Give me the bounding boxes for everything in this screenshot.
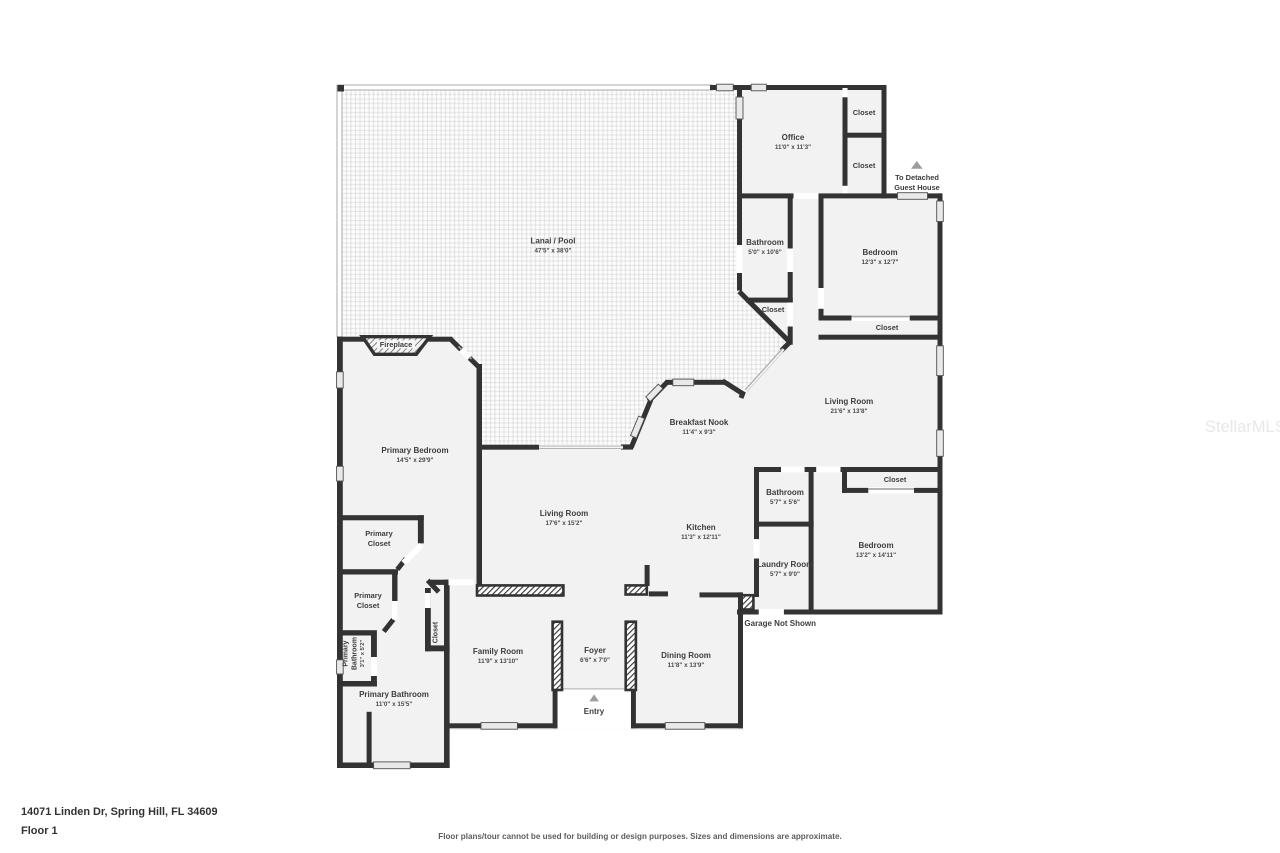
svg-text:3'1" x 5'2": 3'1" x 5'2" xyxy=(360,640,366,668)
svg-text:StellarMLS: StellarMLS xyxy=(1205,418,1280,436)
svg-text:Laundry Room: Laundry Room xyxy=(757,560,813,569)
svg-text:Bedroom: Bedroom xyxy=(862,248,897,257)
svg-text:Entry: Entry xyxy=(584,707,605,716)
svg-text:Floor 1: Floor 1 xyxy=(21,825,58,837)
svg-text:Guest House: Guest House xyxy=(894,183,940,192)
svg-text:11'0" x 15'5": 11'0" x 15'5" xyxy=(376,701,413,708)
svg-text:11'3" x 12'11": 11'3" x 12'11" xyxy=(681,534,721,541)
svg-text:Primary: Primary xyxy=(365,529,393,538)
svg-text:Primary: Primary xyxy=(343,640,350,666)
svg-text:5'7" x 9'0": 5'7" x 9'0" xyxy=(770,571,800,578)
svg-text:Closet: Closet xyxy=(884,475,907,484)
svg-text:Closet: Closet xyxy=(762,305,785,314)
svg-text:Bathroom: Bathroom xyxy=(766,488,804,497)
svg-text:To Detached: To Detached xyxy=(895,173,939,182)
svg-text:Closet: Closet xyxy=(433,621,440,643)
svg-text:17'6" x 15'2": 17'6" x 15'2" xyxy=(546,520,583,527)
svg-text:Closet: Closet xyxy=(853,108,876,117)
svg-text:11'0" x 11'3": 11'0" x 11'3" xyxy=(775,144,811,151)
svg-text:21'6" x 13'8": 21'6" x 13'8" xyxy=(831,408,868,415)
svg-text:Closet: Closet xyxy=(876,323,899,332)
svg-text:11'8" x 13'9": 11'8" x 13'9" xyxy=(668,662,705,669)
svg-text:Breakfast Nook: Breakfast Nook xyxy=(670,418,729,427)
svg-text:Living Room: Living Room xyxy=(540,509,588,518)
svg-text:14071 Linden Dr, Spring Hill,: 14071 Linden Dr, Spring Hill, FL 34609 xyxy=(21,806,218,818)
svg-text:5'7" x 5'6": 5'7" x 5'6" xyxy=(770,499,800,506)
svg-text:Bathroom: Bathroom xyxy=(352,637,359,670)
svg-text:Closet: Closet xyxy=(368,539,391,548)
svg-text:11'9" x 13'10": 11'9" x 13'10" xyxy=(478,658,518,665)
svg-text:Floor plans/tour cannot be use: Floor plans/tour cannot be used for buil… xyxy=(438,832,841,841)
svg-text:Dining Room: Dining Room xyxy=(661,651,711,660)
svg-text:6'6" x 7'0": 6'6" x 7'0" xyxy=(580,657,610,664)
svg-text:Closet: Closet xyxy=(357,601,380,610)
svg-text:Primary: Primary xyxy=(354,591,382,600)
svg-text:Living Room: Living Room xyxy=(825,397,873,406)
svg-text:Kitchen: Kitchen xyxy=(686,523,715,532)
svg-text:Lanai / Pool: Lanai / Pool xyxy=(531,237,576,246)
svg-text:13'2" x 14'11": 13'2" x 14'11" xyxy=(856,552,896,559)
svg-text:Closet: Closet xyxy=(853,161,876,170)
svg-text:14'5" x 29'9": 14'5" x 29'9" xyxy=(397,457,434,464)
svg-text:Office: Office xyxy=(782,133,805,142)
svg-text:12'3" x 12'7": 12'3" x 12'7" xyxy=(862,259,899,266)
svg-text:11'4" x 9'3": 11'4" x 9'3" xyxy=(682,429,715,436)
svg-text:Fireplace: Fireplace xyxy=(380,340,412,349)
svg-text:47'5" x 38'0": 47'5" x 38'0" xyxy=(535,248,572,255)
svg-text:Bathroom: Bathroom xyxy=(746,238,784,247)
svg-text:Garage Not Shown: Garage Not Shown xyxy=(744,619,816,628)
svg-text:5'0" x 10'6": 5'0" x 10'6" xyxy=(748,249,781,256)
svg-text:Primary Bedroom: Primary Bedroom xyxy=(381,446,448,455)
svg-text:Primary Bathroom: Primary Bathroom xyxy=(359,690,429,699)
svg-text:Family Room: Family Room xyxy=(473,647,523,656)
svg-text:Bedroom: Bedroom xyxy=(858,541,893,550)
svg-text:Foyer: Foyer xyxy=(584,646,606,655)
